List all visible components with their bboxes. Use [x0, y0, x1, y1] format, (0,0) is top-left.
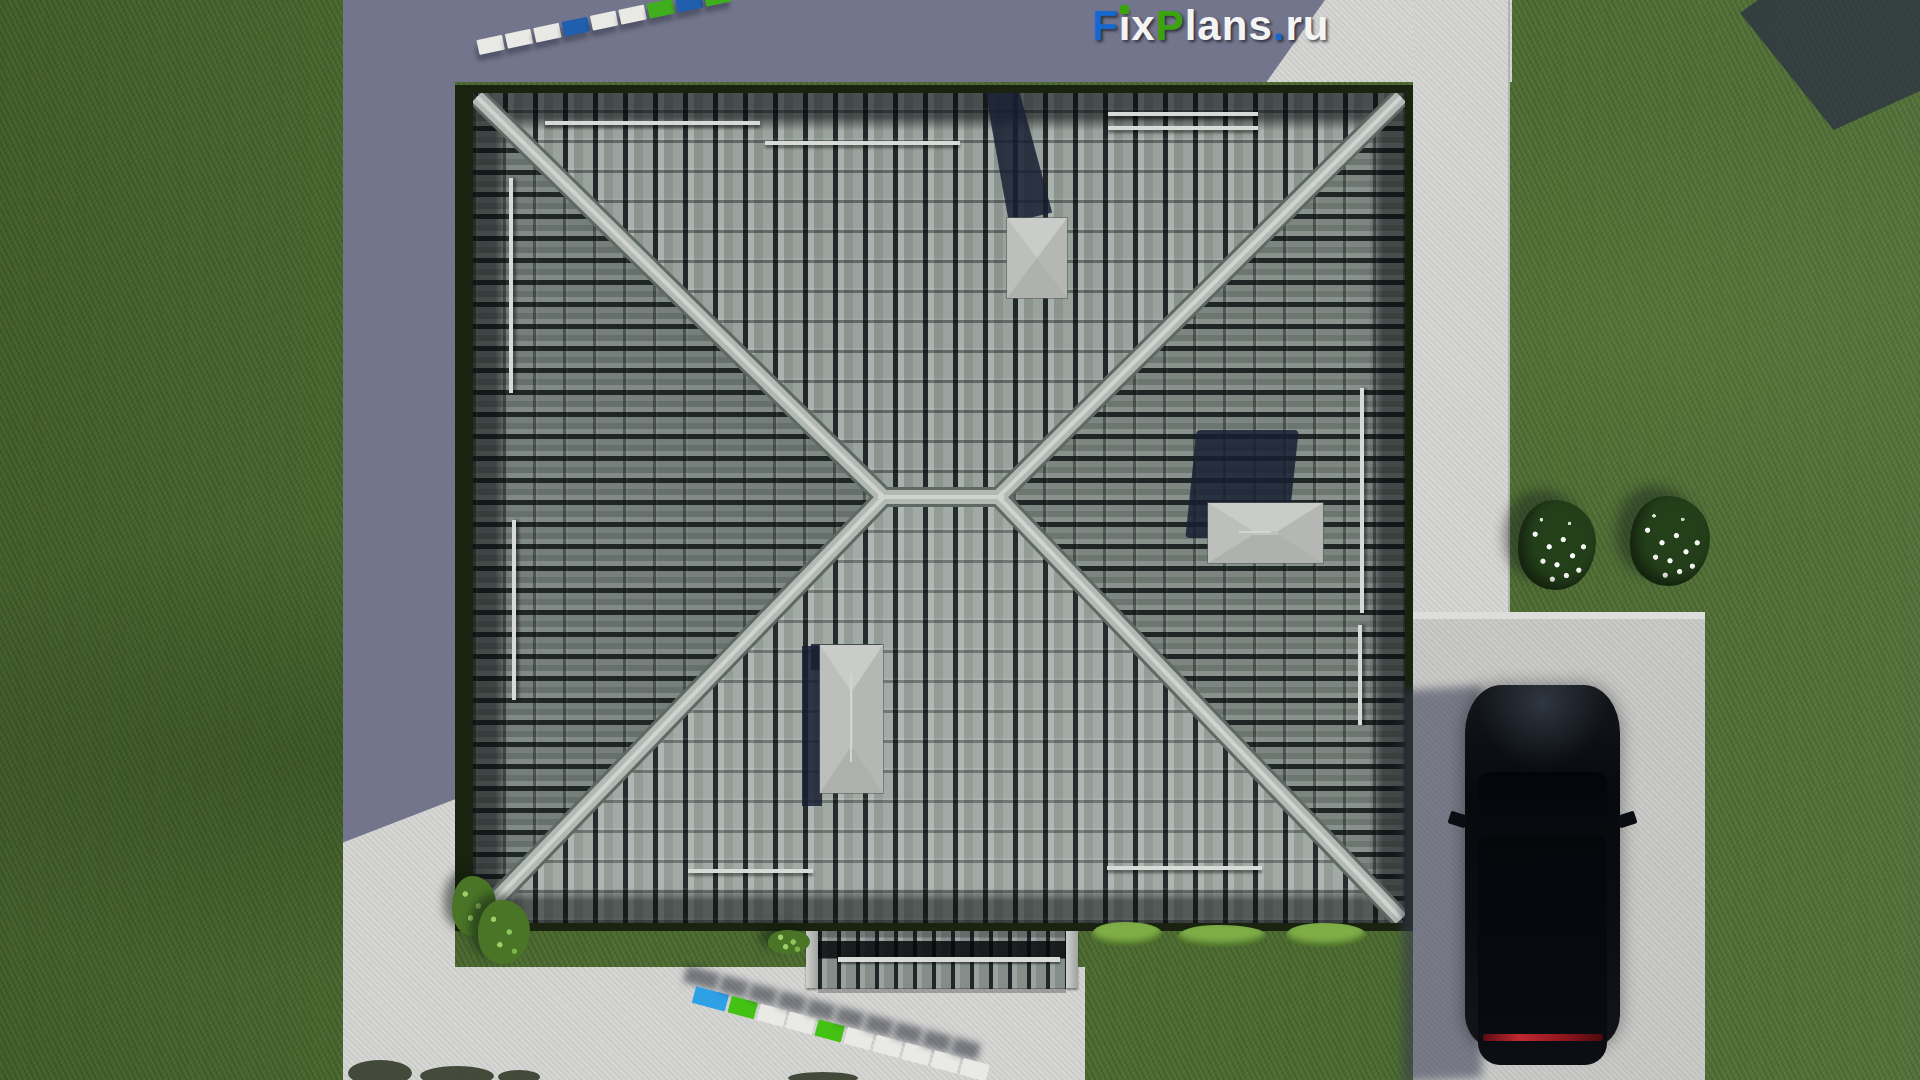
hipped-roof [455, 85, 1413, 931]
logo-letter: F [1092, 2, 1119, 49]
logo-letter: x [1131, 2, 1155, 49]
logo-letters: ru [1285, 2, 1329, 49]
logo-letter: P [1156, 2, 1185, 49]
fixplans-watermark: FixPlans.ru [1092, 2, 1329, 50]
porch-step-shadow [818, 988, 1066, 993]
logo-dot: . [1273, 2, 1286, 49]
eave-shrub-row-2 [1178, 925, 1266, 947]
porch-gutter [838, 957, 1060, 962]
logo-letters: lans [1185, 2, 1273, 49]
car-windshield [1478, 772, 1607, 836]
corner-shadow [1740, 0, 1920, 130]
eave-shrub-row-1 [1092, 922, 1162, 946]
flower-bush-1 [1518, 500, 1596, 590]
roof-vignette [473, 93, 1405, 923]
left-walkway [343, 0, 455, 1080]
shrub-shadow [348, 1060, 412, 1080]
eave-shrub-row-3 [1286, 923, 1366, 947]
shrub-shadow [498, 1070, 540, 1080]
flower-bush-2 [1630, 496, 1710, 586]
logo-letter-i-green-dot: i [1119, 2, 1132, 49]
corner-shrub-2 [478, 900, 530, 964]
shrub-shadow [788, 1072, 858, 1080]
car-taillight [1483, 1034, 1603, 1041]
car-black-suv [1465, 685, 1620, 1048]
porch-column-right [1066, 931, 1078, 988]
porch-canopy [818, 931, 1066, 989]
eave-shrub-left [768, 930, 810, 954]
car-roof [1478, 835, 1607, 1065]
building-shadow-left [343, 0, 455, 1080]
aerial-render-scene: FixPlans.ru [0, 0, 1920, 1080]
right-apron [1413, 0, 1510, 640]
shrub-shadow [420, 1066, 494, 1080]
